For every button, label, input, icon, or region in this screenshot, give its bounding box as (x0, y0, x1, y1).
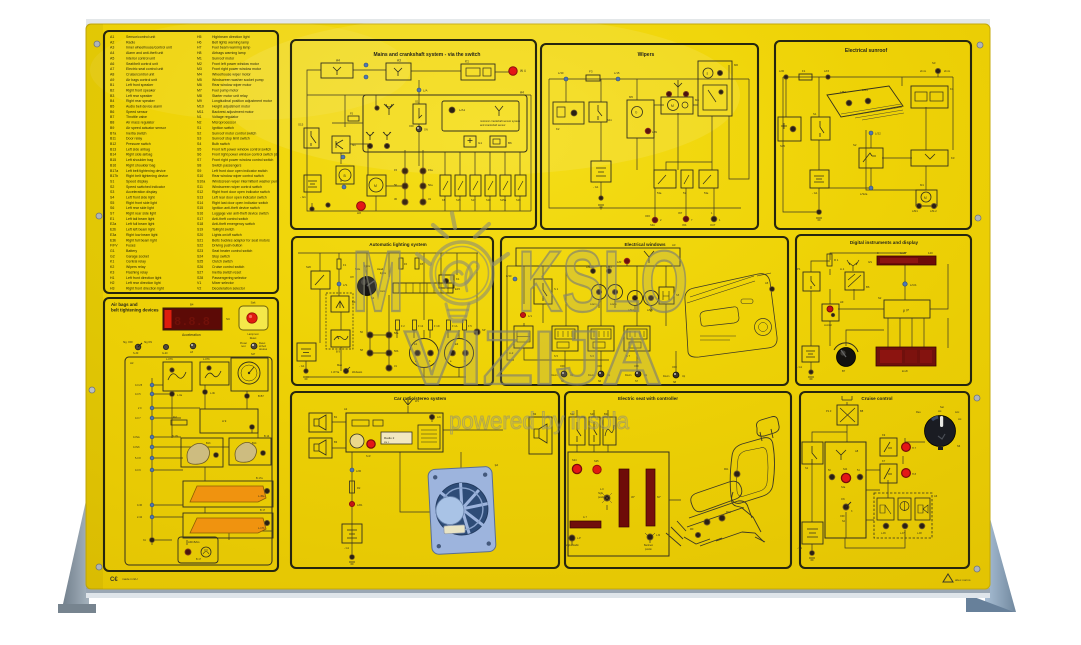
svg-text:0-0Va: 0-0Va (133, 436, 140, 439)
svg-text:S20: S20 (306, 265, 311, 269)
svg-text:S17: S17 (471, 198, 476, 202)
svg-text:F1: F1 (802, 69, 806, 73)
svg-text:B3: B3 (334, 440, 338, 444)
svg-text:2-34: 2-34 (137, 516, 143, 519)
svg-text:INT: INT (678, 211, 683, 215)
svg-text:altec norms: altec norms (955, 578, 971, 582)
svg-text:b: b (636, 111, 638, 115)
svg-text:B13: B13 (206, 442, 211, 445)
svg-text:C€: C€ (110, 577, 118, 583)
svg-text:A4: A4 (520, 91, 524, 95)
svg-text:Man: Man (337, 363, 343, 367)
svg-text:L/15: L/15 (614, 71, 620, 75)
svg-text:G1: G1 (478, 141, 482, 145)
svg-text:Sig ON: Sig ON (144, 341, 152, 344)
svg-text:K1: K1 (465, 60, 469, 64)
svg-text:B7: B7 (842, 369, 846, 373)
svg-text:A5: A5 (765, 281, 769, 285)
svg-text:S24: S24 (572, 458, 577, 462)
svg-text:positi: positi (598, 496, 604, 499)
svg-text:Res: Res (916, 410, 921, 414)
svg-text:B·17a: B·17a (256, 477, 263, 480)
svg-text:- G1: - G1 (300, 195, 306, 199)
svg-text:53a: 53a (657, 191, 662, 195)
svg-text:S15: S15 (456, 198, 461, 202)
svg-text:53e: 53e (704, 191, 709, 195)
svg-text:FM 1: FM 1 (384, 442, 390, 444)
svg-text:L/30: L/30 (356, 469, 362, 473)
svg-text:B14: B14 (252, 442, 257, 445)
svg-text:S2a: S2a (841, 486, 846, 489)
svg-text:S25: S25 (594, 459, 599, 463)
svg-text:0-0 5: 0-0 5 (135, 393, 141, 396)
svg-text:Longitudinal/in: Longitudinal/in (564, 544, 580, 547)
svg-text:L-07b: L-07b (203, 357, 210, 361)
svg-text:S15: S15 (780, 144, 785, 148)
svg-text:1 W 5a: 1 W 5a (331, 370, 340, 374)
svg-text:Down: Down (663, 375, 670, 378)
svg-text:L/B3: L/B3 (862, 88, 868, 92)
svg-text:and crankshaft sensor: and crankshaft sensor (480, 123, 506, 127)
svg-text:K8: K8 (442, 198, 446, 202)
svg-text:B4: B4 (190, 303, 194, 307)
svg-text:8.8.8: 8.8.8 (174, 315, 210, 329)
svg-text:L/S2: L/S2 (875, 132, 881, 136)
svg-text:Mains and crankshaft system -: Mains and crankshaft system - via the sw… (374, 52, 481, 58)
svg-text:W 4: W 4 (520, 69, 526, 73)
svg-text:M6: M6 (734, 63, 738, 67)
svg-text:L-0: L-0 (600, 488, 604, 491)
svg-text:OFF: OFF (409, 125, 414, 128)
svg-text:2mm: 2mm (920, 69, 927, 73)
svg-text:L-45a: L-45a (258, 495, 265, 498)
svg-text:next: next (241, 345, 246, 348)
svg-text:B 9: B 9 (336, 350, 340, 354)
svg-text:km/h: km/h (902, 369, 909, 373)
svg-text:K1: K1 (456, 277, 460, 281)
svg-text:E15: E15 (455, 287, 460, 291)
svg-text:B8: B8 (860, 409, 864, 413)
svg-text:15a: 15a (428, 168, 433, 172)
svg-text:R2: R2 (357, 486, 361, 490)
svg-text:F1: F1 (343, 263, 347, 267)
svg-text:31: 31 (428, 197, 432, 201)
svg-text:P1: P1 (797, 267, 801, 271)
svg-text:15: 15 (394, 168, 398, 172)
svg-text:Wipers: Wipers (638, 52, 655, 58)
svg-text:AIR-BAG: AIR-BAG (188, 540, 200, 544)
svg-text:56a: 56a (394, 331, 399, 335)
svg-text:OFF: OFF (645, 214, 651, 218)
svg-text:A·1: A·1 (840, 267, 845, 271)
svg-text:L/30: L/30 (779, 69, 785, 73)
svg-text:L-0a: L-0a (177, 394, 183, 397)
svg-text:S24: S24 (843, 468, 848, 471)
svg-text:F3: F3 (589, 70, 593, 74)
svg-text:powered by insola: powered by insola (449, 408, 630, 435)
svg-text:INS: INS (682, 223, 687, 227)
svg-text:50: 50 (394, 183, 398, 187)
svg-text:S3A: S3A (650, 223, 655, 227)
svg-text:OUT: OUT (710, 223, 716, 227)
svg-text:Reset: Reset (250, 337, 257, 340)
svg-text:R 1: R 1 (834, 258, 839, 262)
svg-text:B6: B6 (866, 285, 870, 289)
svg-text:- G1: - G1 (593, 185, 599, 189)
svg-text:ON: ON (841, 498, 845, 501)
svg-text:2mm: 2mm (944, 69, 951, 73)
svg-text:Salt: Salt (251, 301, 256, 305)
svg-text:cst: cst (938, 409, 942, 413)
svg-text:L/GS: L/GS (910, 283, 917, 287)
svg-text:M4: M4 (695, 98, 699, 102)
svg-text:K7: K7 (882, 459, 886, 463)
svg-text:S1: S1 (415, 100, 419, 104)
svg-text:0-0 9: 0-0 9 (135, 469, 141, 472)
svg-text:A4: A4 (336, 59, 340, 63)
svg-text:L/R1: L/R1 (357, 503, 363, 507)
svg-text:K3: K3 (951, 156, 955, 160)
svg-text:- G1: - G1 (299, 364, 305, 368)
svg-text:H 8: H 8 (357, 211, 361, 215)
svg-text:L/M-2: L/M-2 (930, 209, 937, 213)
svg-text:Webasto: Webasto (352, 370, 363, 374)
svg-text:L/30: L/30 (558, 71, 564, 75)
svg-text:L-M: L-M (656, 534, 660, 537)
svg-text:M10: M10 (726, 511, 731, 514)
svg-text:L-08: L-08 (917, 533, 922, 535)
svg-text:Air: Air (130, 361, 134, 365)
svg-text:L/B2: L/B2 (840, 90, 846, 94)
svg-text:A8: A8 (855, 449, 859, 453)
svg-text:B·14: B·14 (264, 435, 270, 438)
svg-text:H·8: H·8 (912, 473, 917, 476)
svg-text:L/S: L/S (343, 283, 347, 287)
svg-text:Lamp test: Lamp test (248, 333, 259, 336)
svg-text:Sig. OFF: Sig. OFF (123, 341, 133, 344)
svg-text:B14Right side airbagS6Front li: B14Right side airbagS6Front light power … (110, 153, 285, 157)
svg-text:0-36: 0-36 (137, 504, 143, 507)
svg-text:S6: S6 (957, 444, 961, 448)
svg-text:L-07: L-07 (900, 533, 905, 535)
svg-text:made in EU: made in EU (122, 577, 138, 581)
svg-text:positio: positio (645, 548, 652, 551)
svg-text:K2: K2 (556, 127, 560, 131)
svg-text:Set: Set (940, 405, 944, 409)
svg-text:L-0b: L-0b (210, 392, 216, 395)
svg-text:S2: S2 (853, 143, 857, 147)
svg-text:A3: A3 (397, 59, 401, 63)
svg-text:P1.3: P1.3 (826, 409, 832, 413)
svg-text:L-P: L-P (577, 537, 581, 540)
svg-text:K1: K1 (950, 87, 954, 91)
svg-text:30: 30 (394, 197, 398, 201)
svg-text:S15: S15 (298, 123, 304, 127)
svg-text:B·B7: B·B7 (258, 394, 264, 398)
svg-text:S16: S16 (516, 198, 521, 202)
svg-text:M: M (924, 196, 927, 200)
svg-text:0-0 7: 0-0 7 (135, 417, 141, 420)
svg-text:- G1: - G1 (812, 191, 818, 195)
svg-text:A6: A6 (934, 494, 938, 498)
svg-text:56b: 56b (394, 349, 399, 353)
svg-text:G-20: G-20 (162, 352, 168, 355)
svg-text:L/30: L/30 (506, 274, 512, 278)
svg-text:belt tightening devices: belt tightening devices (111, 308, 159, 313)
svg-text:B6: B6 (508, 141, 512, 145)
svg-text:S1: S1 (813, 112, 817, 116)
svg-text:N1: N1 (352, 143, 356, 147)
svg-text:control: control (824, 323, 832, 327)
svg-text:M5: M5 (629, 95, 633, 99)
svg-text:50a: 50a (428, 183, 433, 187)
svg-text:devices: devices (259, 348, 268, 351)
svg-text:S27: S27 (251, 353, 256, 356)
svg-text:M: M (374, 184, 377, 188)
svg-text:GS: GS (868, 260, 872, 264)
svg-text:Air bags and: Air bags and (111, 302, 138, 307)
svg-text:B 17: B 17 (260, 509, 266, 512)
svg-text:A·7: A·7 (583, 516, 588, 519)
svg-text:K9: K9 (882, 433, 886, 437)
svg-text:L/W: L/W (652, 130, 657, 134)
svg-text:VIZIJA: VIZIJA (404, 316, 662, 401)
svg-text:B·17: B·17 (196, 558, 202, 561)
svg-text:- G1: - G1 (797, 546, 803, 550)
svg-text:R-0: R-0 (173, 416, 178, 419)
svg-text:L/A: L/A (423, 89, 428, 93)
svg-text:L/15: L/15 (824, 69, 830, 73)
svg-text:M1: M1 (920, 183, 924, 187)
svg-text:L/M1: L/M1 (912, 209, 918, 213)
svg-text:L-06: L-06 (881, 533, 886, 535)
svg-text:Acc: Acc (955, 410, 960, 414)
svg-text:N2: N2 (878, 296, 882, 300)
svg-text:30°: 30° (631, 495, 635, 499)
svg-text:A 9: A 9 (222, 419, 227, 423)
svg-text:S·R: S·R (366, 454, 371, 458)
svg-text:A2: A2 (344, 407, 348, 411)
svg-text:km/h: km/h (900, 251, 907, 255)
svg-text:5-0 8: 5-0 8 (135, 457, 141, 460)
svg-text:Digital instruments and displa: Digital instruments and display (850, 240, 919, 245)
svg-text:S15a: S15a (500, 198, 507, 202)
svg-text:M11: M11 (724, 468, 729, 471)
svg-text:OFF: OFF (672, 366, 677, 369)
svg-text:B·13L: B·13L (172, 435, 179, 438)
svg-text:Cruise control: Cruise control (861, 396, 892, 401)
svg-text:2 0: 2 0 (138, 407, 142, 410)
svg-text:S-30: S-30 (133, 352, 139, 355)
svg-text:H9: H9 (840, 300, 844, 304)
svg-text:S18: S18 (486, 198, 491, 202)
svg-text:0-0Vb: 0-0Vb (133, 446, 140, 449)
svg-text:L/A: L/A (437, 415, 441, 419)
svg-text:L/A1: L/A1 (459, 108, 466, 112)
svg-text:L-076: L-076 (166, 357, 173, 361)
svg-text:high: high (598, 492, 603, 495)
svg-text:M: M (671, 104, 674, 108)
svg-text:motronic crankshaft sensor sys: motronic crankshaft sensor system (480, 119, 520, 123)
svg-text:S11: S11 (607, 118, 612, 122)
svg-text:- G1: - G1 (797, 365, 803, 369)
svg-text:L-17b: L-17b (258, 527, 265, 530)
svg-text:Radio 2: Radio 2 (384, 436, 395, 440)
svg-text:L/S2a: L/S2a (860, 192, 868, 196)
svg-text:H·7: H·7 (912, 447, 917, 450)
svg-text:S3: S3 (932, 61, 936, 65)
svg-text:140: 140 (928, 251, 933, 255)
svg-text:ON: ON (424, 129, 428, 132)
svg-text:S1: S1 (805, 466, 809, 470)
svg-text:- G1: - G1 (344, 546, 350, 550)
svg-text:Backrest: Backrest (644, 544, 653, 547)
svg-text:OFF: OFF (840, 515, 845, 518)
svg-text:0-0 25: 0-0 25 (135, 384, 143, 387)
svg-text:μ P: μ P (903, 308, 909, 313)
svg-text:cst: cst (958, 417, 962, 421)
svg-text:60°: 60° (657, 495, 661, 499)
svg-text:B1: B1 (334, 415, 338, 419)
svg-text:Electrical sunroof: Electrical sunroof (845, 48, 888, 54)
svg-text:M: M (352, 234, 404, 330)
svg-text:Acceleration: Acceleration (182, 333, 201, 337)
